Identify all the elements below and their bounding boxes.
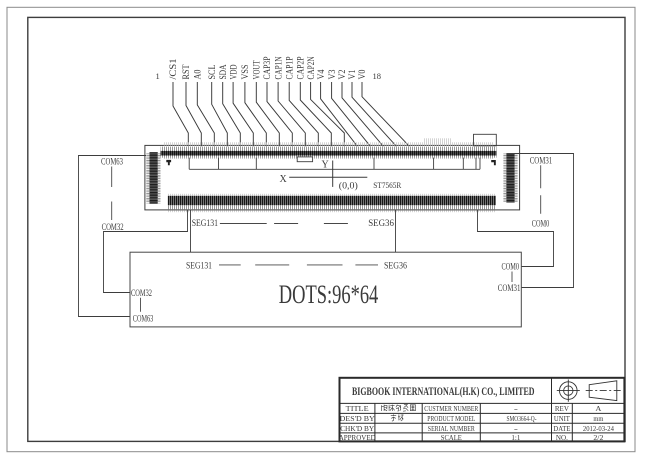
svg-text:SCALE: SCALE [441, 433, 462, 442]
svg-text:V1: V1 [347, 70, 357, 80]
svg-text:1: 1 [156, 71, 160, 81]
svg-text:ST7565R: ST7565R [373, 181, 402, 190]
svg-text:CAP2N: CAP2N [306, 56, 316, 79]
svg-text:V2: V2 [337, 70, 347, 80]
svg-text:CAP1N: CAP1N [273, 56, 283, 79]
svg-text:BIGBOOK INTERNATIONAL(H.K) CO.: BIGBOOK INTERNATIONAL(H.K) CO., LIMITED [352, 386, 535, 398]
svg-text:REV: REV [555, 404, 570, 413]
svg-text:DATE: DATE [553, 424, 570, 433]
svg-text:(0,0): (0,0) [339, 180, 358, 191]
svg-text:2/2: 2/2 [593, 433, 603, 442]
svg-text:SEG131: SEG131 [192, 218, 218, 228]
svg-text:CAP1P: CAP1P [284, 57, 294, 80]
svg-text:COM63: COM63 [133, 314, 154, 324]
svg-text:COM63: COM63 [101, 157, 123, 167]
svg-text:VOUT: VOUT [252, 60, 262, 79]
svg-text:RST: RST [181, 64, 191, 79]
svg-text:COM31: COM31 [498, 283, 521, 293]
svg-text:COM31: COM31 [530, 156, 553, 166]
svg-text:X: X [280, 174, 288, 185]
svg-text:SEG36: SEG36 [384, 261, 407, 271]
svg-text:A: A [595, 404, 602, 413]
svg-text:CAP3P: CAP3P [262, 57, 272, 80]
svg-text:SDA: SDA [218, 64, 228, 79]
svg-text:SMO3664-Q-: SMO3664-Q- [507, 414, 537, 423]
svg-text:NO.: NO. [556, 433, 568, 442]
svg-text:CUSTMER NUMBER: CUSTMER NUMBER [424, 404, 478, 413]
svg-text:COM32: COM32 [102, 222, 124, 232]
svg-text:VSS: VSS [240, 65, 250, 80]
svg-text:CAP2P: CAP2P [296, 57, 306, 80]
svg-text:APPROVED: APPROVED [339, 433, 377, 442]
svg-text:COM0: COM0 [532, 218, 550, 228]
svg-text:18: 18 [373, 71, 382, 81]
svg-text:TITLE: TITLE [346, 404, 369, 413]
svg-text:V0: V0 [357, 69, 367, 79]
svg-text:DOTS:96*64: DOTS:96*64 [279, 279, 379, 309]
svg-text:mm: mm [593, 414, 603, 423]
svg-text:SEG131: SEG131 [186, 261, 212, 271]
svg-text:V4: V4 [316, 69, 326, 79]
svg-text:CHK'D BY: CHK'D BY [340, 424, 375, 433]
svg-text:COM32: COM32 [131, 288, 152, 298]
svg-text:COM0: COM0 [502, 261, 520, 271]
svg-text:VDD: VDD [228, 64, 238, 79]
svg-text:SCL: SCL [207, 65, 217, 80]
svg-text:SERIAL NUMBER: SERIAL NUMBER [428, 424, 475, 433]
svg-text:1:1: 1:1 [511, 433, 520, 442]
svg-text:SEG36: SEG36 [368, 218, 394, 228]
svg-text:Y: Y [322, 159, 329, 170]
svg-text:PRODUCT MODEL: PRODUCT MODEL [427, 414, 475, 423]
svg-text:A0: A0 [193, 69, 203, 79]
svg-text:DES'D BY: DES'D BY [340, 414, 376, 423]
svg-text:/CS1: /CS1 [168, 59, 178, 80]
svg-text:UNIT: UNIT [554, 414, 570, 423]
svg-text:2012-03-24: 2012-03-24 [583, 424, 614, 433]
svg-text:V3: V3 [327, 69, 337, 79]
